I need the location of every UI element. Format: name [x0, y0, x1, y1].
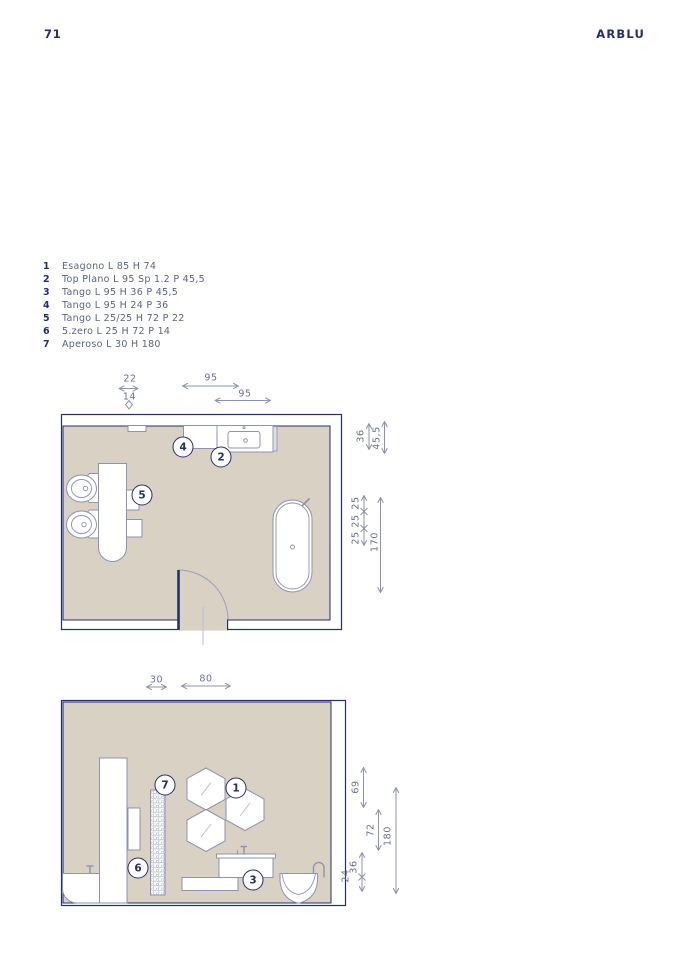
dim-label: 72	[366, 823, 377, 836]
bathtub-plan	[273, 499, 312, 593]
page-number: 71	[44, 27, 62, 41]
dim-label: 30	[150, 674, 163, 685]
legend-item-number: 5	[43, 313, 62, 324]
legend-item-label: Tango L 25/25 H 72 P 22	[62, 313, 185, 324]
dim-label: 25	[350, 496, 361, 509]
floor-plan-top-view	[55, 365, 400, 650]
callout-3: 3	[243, 870, 264, 891]
dim-label: 180	[383, 826, 394, 846]
legend-item: 1 Esagono L 85 H 74	[43, 260, 205, 273]
wall-niche	[128, 426, 146, 432]
low-shelf	[182, 878, 238, 891]
legend-item: 3 Tango L 95 H 36 P 45,5	[43, 286, 205, 299]
legend-item-label: Tango L 95 H 24 P 36	[62, 300, 168, 311]
legend-item: 5 Tango L 25/25 H 72 P 22	[43, 312, 205, 325]
legend-item: 2 Top Plano L 95 Sp 1.2 P 45,5	[43, 273, 205, 286]
legend-item-label: Tango L 95 H 36 P 45,5	[62, 287, 178, 298]
dim-label: 69	[350, 780, 361, 793]
toilet-plan	[67, 474, 104, 503]
callout-4: 4	[173, 437, 194, 458]
catalog-page: 71 ARBLU 1 Esagono L 85 H 74 2 Top Plano…	[0, 0, 678, 959]
callout-7: 7	[155, 775, 176, 796]
dim-label: 95	[238, 388, 251, 399]
legend-item-number: 3	[43, 287, 62, 298]
legend-item: 4 Tango L 95 H 24 P 36	[43, 299, 205, 312]
dim-label: 45,5	[372, 426, 383, 450]
legend-item-number: 7	[43, 339, 62, 350]
legend-item-number: 1	[43, 261, 62, 272]
legend-item: 6 5.zero L 25 H 72 P 14	[43, 325, 205, 338]
radiator-aperoso	[151, 790, 166, 895]
legend-item-label: Top Plano L 95 Sp 1.2 P 45,5	[62, 274, 205, 285]
callout-5: 5	[132, 485, 153, 506]
dim-label: 14	[123, 391, 136, 402]
legend-item-number: 2	[43, 274, 62, 285]
legend-item-label: 5.zero L 25 H 72 P 14	[62, 326, 170, 337]
legend-item-label: Aperoso L 30 H 180	[62, 339, 161, 350]
brand-logo: ARBLU	[596, 27, 645, 41]
callout-6: 6	[128, 858, 149, 879]
dim-label: 25	[350, 514, 361, 527]
callout-1: 1	[226, 778, 247, 799]
radiator-5zero	[128, 808, 140, 850]
dim-label: 80	[199, 673, 212, 684]
dim-label: 95	[204, 373, 217, 384]
legend-item-number: 6	[43, 326, 62, 337]
dim-label: 22	[123, 373, 136, 384]
legend: 1 Esagono L 85 H 74 2 Top Plano L 95 Sp …	[43, 260, 205, 351]
callout-2: 2	[211, 447, 232, 468]
bidet-plan	[67, 510, 104, 538]
legend-item: 7 Aperoso L 30 H 180	[43, 338, 205, 351]
dim-label: 170	[370, 532, 381, 552]
legend-item-label: Esagono L 85 H 74	[62, 261, 156, 272]
tall-column-cabinet	[100, 758, 128, 903]
dim-label: 24	[341, 869, 352, 882]
dim-label: 36	[356, 429, 367, 442]
legend-item-number: 4	[43, 300, 62, 311]
dim-label: 25	[350, 531, 361, 544]
